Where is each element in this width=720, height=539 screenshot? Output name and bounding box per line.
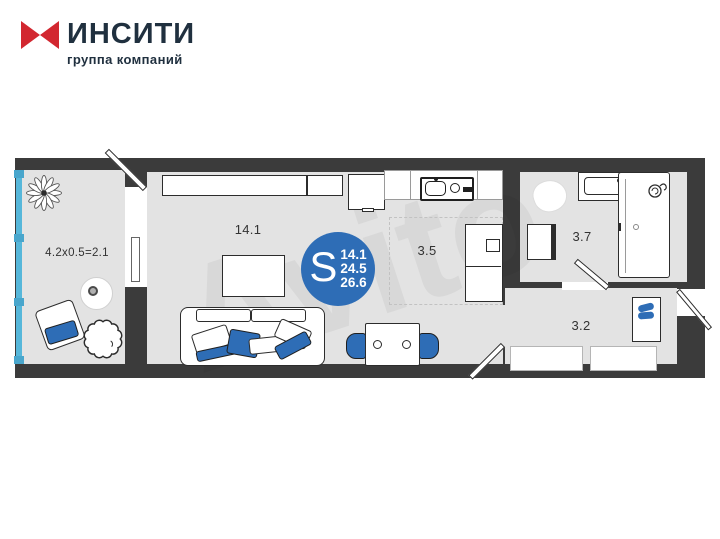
sofa-back-cushion	[196, 309, 251, 322]
glazing-node	[14, 170, 24, 178]
brand-name: ИНСИТИ	[67, 20, 195, 49]
balcony-label: 4.2x0.5=2.1	[45, 247, 109, 259]
shower-head-icon	[647, 180, 669, 202]
washing-machine	[527, 224, 556, 260]
kitchen-sink-hob-unit	[420, 177, 474, 201]
fridge-handle	[362, 208, 374, 212]
glazing-node	[14, 356, 24, 364]
bathroom-label: 3.7	[573, 229, 592, 244]
faucet-icon	[434, 177, 438, 181]
hallway-label: 3.2	[572, 318, 591, 333]
brand-subtitle: группа компаний	[67, 53, 195, 66]
desk	[222, 255, 285, 297]
area-living: 14.1	[340, 248, 366, 262]
balcony-door-opening	[125, 187, 147, 233]
coffee-cup-icon	[88, 286, 98, 296]
balcony-window-frame	[131, 237, 140, 282]
glazing-node	[14, 298, 24, 306]
glazing-node	[14, 234, 24, 242]
balcony-glazing	[16, 170, 22, 364]
brand-logo: ИНСИТИ группа компаний	[20, 20, 195, 66]
living-room-label: 14.1	[235, 222, 262, 237]
room-hall-doorway	[503, 305, 520, 347]
sofa-back-cushion	[251, 309, 306, 322]
dining-chair-right	[419, 333, 439, 359]
floor-plan: Avito	[15, 158, 705, 378]
shoe-icon	[638, 311, 654, 319]
plant-flower-icon	[26, 175, 62, 211]
counter-divider	[410, 170, 411, 200]
floor-plan-page: ИНСИТИ группа компаний Avito	[0, 0, 720, 539]
hall-wardrobe	[590, 346, 657, 371]
wardrobe	[162, 175, 307, 196]
hob-burner-icon	[450, 183, 460, 193]
fridge	[348, 174, 385, 210]
area-summary-badge: S 14.1 24.5 26.6	[301, 232, 375, 306]
dining-table	[365, 323, 420, 366]
shrub-plant-icon	[78, 315, 128, 363]
brand-logo-icon	[20, 20, 60, 52]
cabinet-handle	[486, 239, 500, 252]
dining-chair-left	[346, 333, 366, 359]
hall-wardrobe	[510, 346, 583, 371]
wardrobe-section	[307, 175, 343, 196]
area-letter: S	[309, 246, 337, 288]
sink-basin	[425, 181, 446, 196]
area-overall: 26.6	[340, 276, 366, 290]
kitchen-tall-cabinet	[465, 224, 503, 302]
hob-grill-icon	[463, 185, 472, 192]
kitchen-label: 3.5	[418, 243, 437, 258]
counter-divider	[477, 170, 478, 200]
drain-icon	[633, 224, 639, 230]
area-total: 24.5	[340, 262, 366, 276]
shoe-cabinet	[632, 297, 661, 342]
